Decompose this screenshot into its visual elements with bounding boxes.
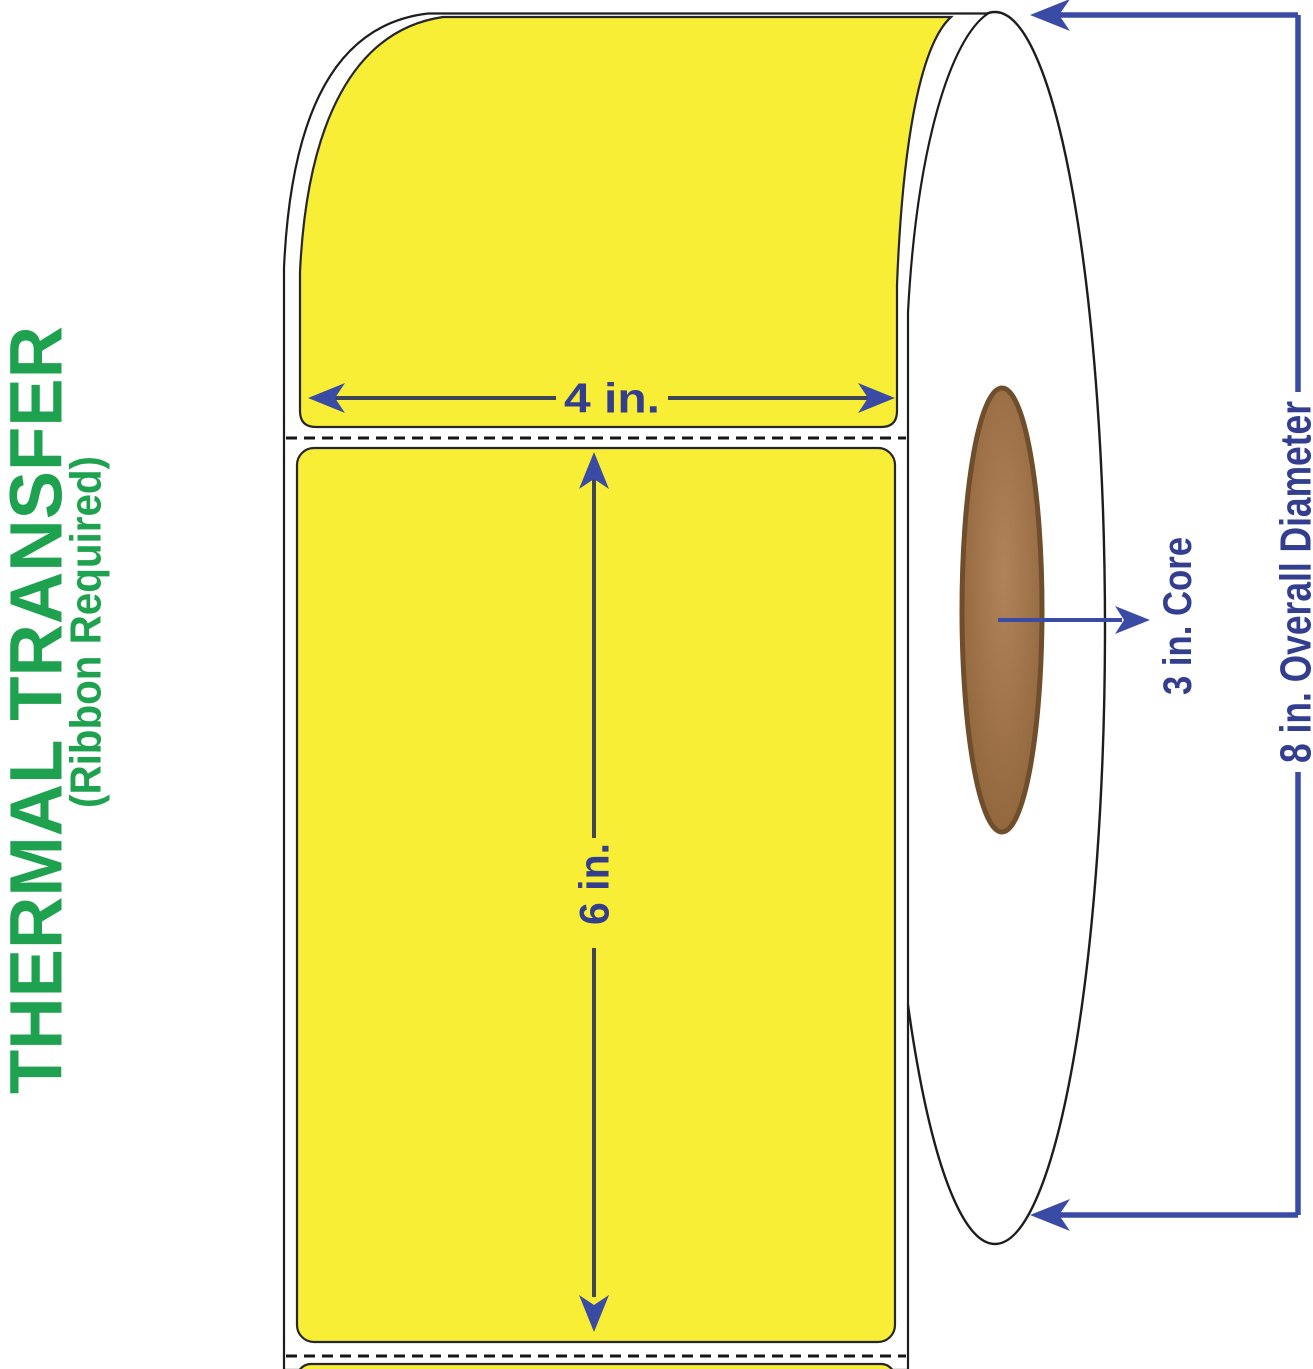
- side-caption: THERMAL TRANSFER (Ribbon Required): [0, 326, 111, 1094]
- label-bottom-sliver: [297, 1364, 895, 1369]
- overall-diameter-text: 8 in. Overall Diameter: [1272, 401, 1313, 763]
- core-ellipse: [962, 388, 1042, 832]
- core-size-text: 3 in. Core: [1156, 537, 1200, 695]
- label-top-wrapped: [300, 17, 951, 427]
- ribbon-required-text: (Ribbon Required): [62, 456, 111, 808]
- label-length-text: 6 in.: [571, 843, 618, 925]
- diagram-canvas: 4 in. 6 in. 3 in. Core 8 in. Overall Dia…: [0, 0, 1313, 1369]
- label-roll-diagram: 4 in. 6 in. 3 in. Core 8 in. Overall Dia…: [0, 0, 1313, 1369]
- label-width-text: 4 in.: [564, 375, 660, 422]
